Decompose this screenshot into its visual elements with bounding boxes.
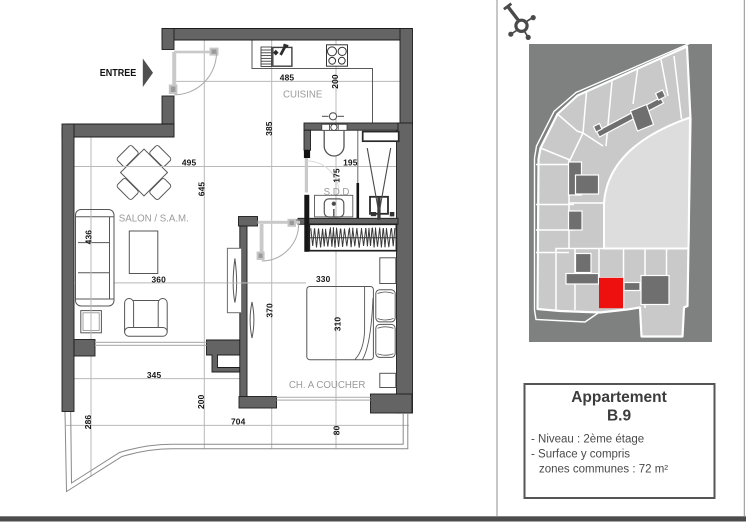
svg-text:485: 485 [280, 72, 295, 82]
svg-text:195: 195 [343, 158, 358, 168]
svg-text:B.9: B.9 [607, 408, 632, 425]
svg-text:345: 345 [147, 370, 162, 380]
svg-text:CUISINE: CUISINE [283, 90, 323, 101]
svg-text:200: 200 [196, 394, 206, 409]
svg-text:385: 385 [264, 121, 274, 136]
svg-text:ENTREE: ENTREE [100, 68, 137, 79]
svg-text:zones communes : 72 m²: zones communes : 72 m² [539, 464, 668, 476]
svg-text:175: 175 [332, 168, 342, 183]
svg-text:80: 80 [332, 425, 342, 435]
svg-text:286: 286 [83, 415, 93, 430]
svg-text:CH. A COUCHER: CH. A COUCHER [289, 380, 365, 391]
svg-text:495: 495 [182, 158, 197, 168]
svg-text:360: 360 [151, 275, 166, 285]
svg-text:- Surface y compris: - Surface y compris [531, 449, 630, 461]
svg-text:S.D.D: S.D.D [324, 187, 350, 198]
svg-text:645: 645 [197, 182, 207, 197]
svg-text:- Niveau : 2ème étage: - Niveau : 2ème étage [531, 434, 644, 446]
svg-text:SALON / S.A.M.: SALON / S.A.M. [119, 213, 189, 224]
svg-text:Appartement: Appartement [571, 389, 667, 406]
svg-text:200: 200 [330, 74, 340, 89]
svg-text:704: 704 [231, 417, 246, 427]
svg-text:330: 330 [316, 274, 331, 284]
svg-text:370: 370 [265, 303, 275, 318]
svg-text:310: 310 [333, 317, 343, 332]
svg-text:436: 436 [84, 230, 94, 245]
